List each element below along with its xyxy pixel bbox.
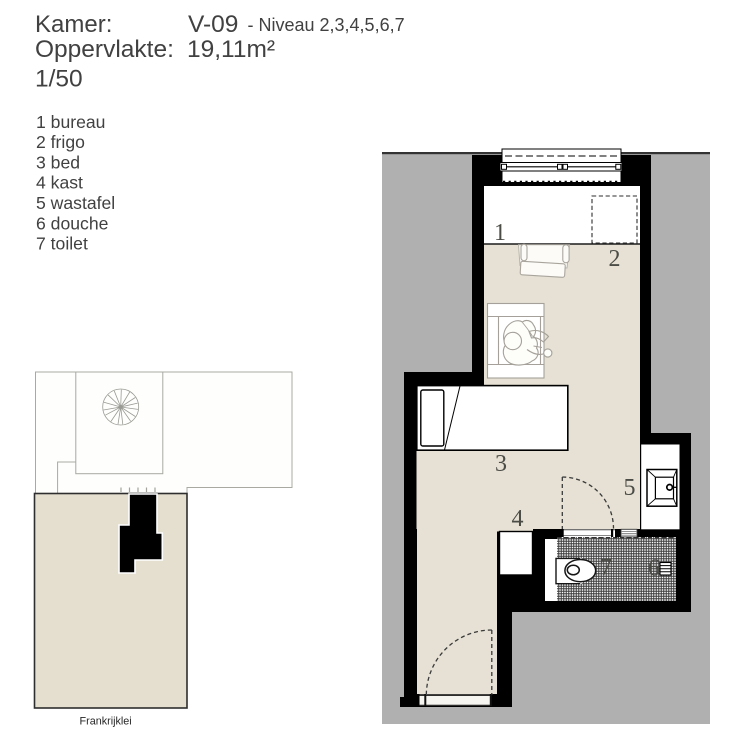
svg-text:Oppervlakte:: Oppervlakte: xyxy=(35,36,174,63)
svg-text:5 wastafel: 5 wastafel xyxy=(36,193,115,213)
svg-text:2 frigo: 2 frigo xyxy=(36,132,85,152)
svg-text:3 bed: 3 bed xyxy=(36,152,80,172)
svg-text:4: 4 xyxy=(512,506,524,532)
svg-text:V-09: V-09 xyxy=(188,11,238,38)
svg-text:3: 3 xyxy=(495,451,507,477)
svg-text:- Niveau 2,3,4,5,6,7: - Niveau 2,3,4,5,6,7 xyxy=(248,15,405,35)
svg-text:5: 5 xyxy=(624,475,636,501)
svg-text:1/50: 1/50 xyxy=(35,65,83,92)
svg-text:6: 6 xyxy=(648,556,660,582)
svg-text:1 bureau: 1 bureau xyxy=(36,112,105,132)
svg-text:1: 1 xyxy=(494,220,506,246)
svg-text:6 douche: 6 douche xyxy=(36,213,108,233)
svg-text:7: 7 xyxy=(600,555,612,581)
svg-text:4 kast: 4 kast xyxy=(36,173,83,193)
svg-text:Frankrijklei: Frankrijklei xyxy=(80,716,132,728)
svg-text:Kamer:: Kamer: xyxy=(35,11,112,38)
svg-text:7 toilet: 7 toilet xyxy=(36,234,88,254)
svg-text:19,11m²: 19,11m² xyxy=(187,36,275,63)
svg-text:2: 2 xyxy=(609,246,621,272)
